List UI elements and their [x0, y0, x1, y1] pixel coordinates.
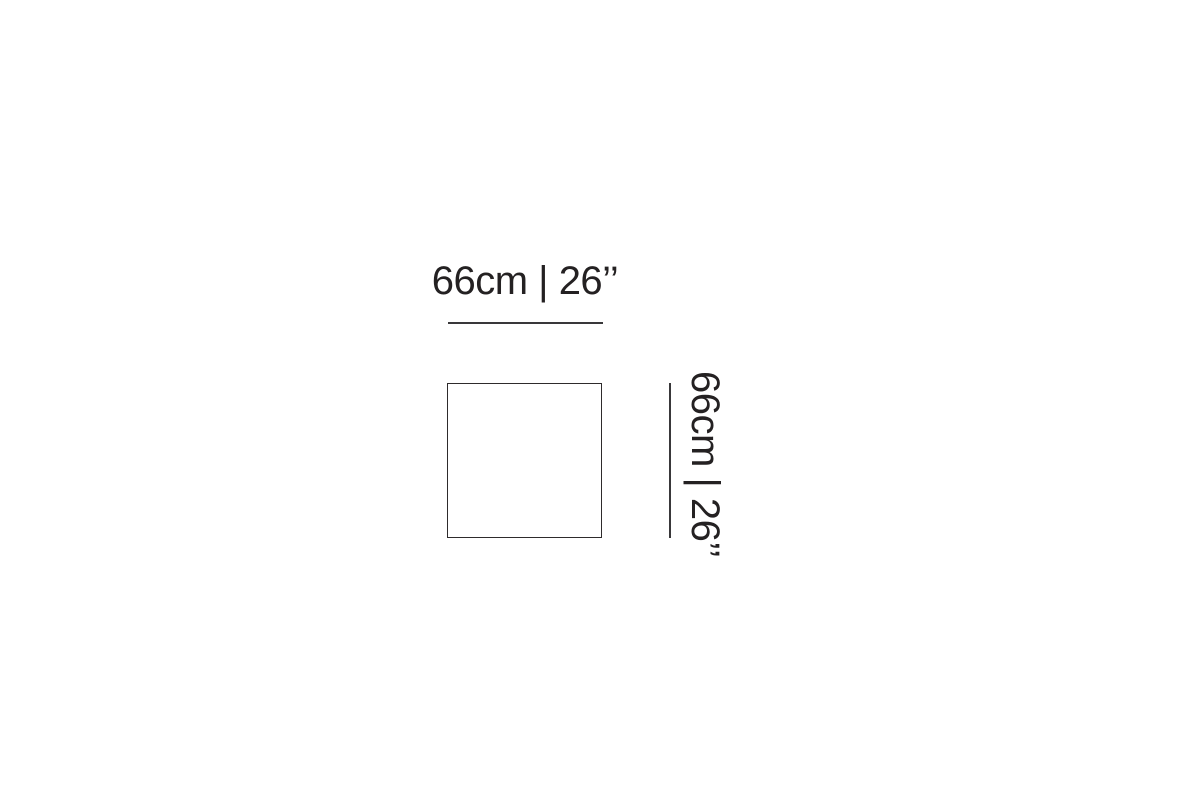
diagram-canvas: 66cm | 26’’ 66cm | 26’’ [0, 0, 1200, 800]
width-dimension-label: 66cm | 26’’ [432, 257, 618, 305]
product-outline-square [447, 383, 602, 538]
width-dimension-line [448, 322, 603, 324]
height-dimension-line [669, 383, 671, 538]
height-dimension-label: 66cm | 26’’ [683, 371, 727, 557]
